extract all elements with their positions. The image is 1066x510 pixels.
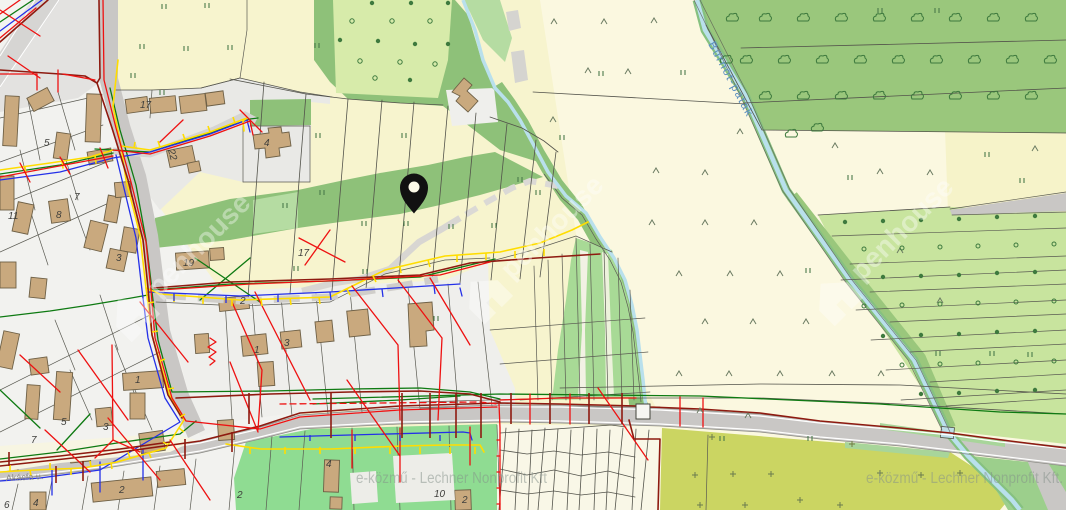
svg-text:4: 4 — [264, 138, 270, 149]
svg-text:4: 4 — [326, 459, 332, 470]
svg-text:11: 11 — [8, 211, 18, 222]
svg-text:3: 3 — [284, 338, 290, 349]
svg-text:17: 17 — [140, 100, 152, 111]
svg-text:e-közmű - Lechner Nonprofit Kf: e-közmű - Lechner Nonprofit Kft — [356, 470, 548, 487]
svg-text:2: 2 — [236, 490, 243, 501]
svg-text:3: 3 — [116, 253, 122, 264]
svg-text:5: 5 — [44, 138, 50, 149]
svg-text:10: 10 — [434, 489, 446, 500]
svg-text:5: 5 — [61, 417, 67, 428]
svg-text:6: 6 — [4, 500, 10, 510]
svg-text:7: 7 — [31, 435, 37, 446]
svg-text:Akácfa u.: Akácfa u. — [6, 471, 44, 483]
svg-text:1: 1 — [254, 345, 260, 356]
svg-text:e-közmű - Lechner Nonprofit Kf: e-közmű - Lechner Nonprofit Kft. — [866, 470, 1063, 487]
svg-text:2: 2 — [461, 495, 468, 506]
svg-text:3: 3 — [103, 422, 109, 433]
svg-text:2: 2 — [239, 296, 246, 307]
svg-text:4: 4 — [33, 498, 39, 509]
svg-text:8: 8 — [56, 210, 62, 221]
svg-text:7: 7 — [74, 192, 80, 203]
svg-text:1: 1 — [135, 375, 141, 386]
svg-text:2: 2 — [118, 485, 125, 496]
svg-text:17: 17 — [298, 248, 310, 259]
